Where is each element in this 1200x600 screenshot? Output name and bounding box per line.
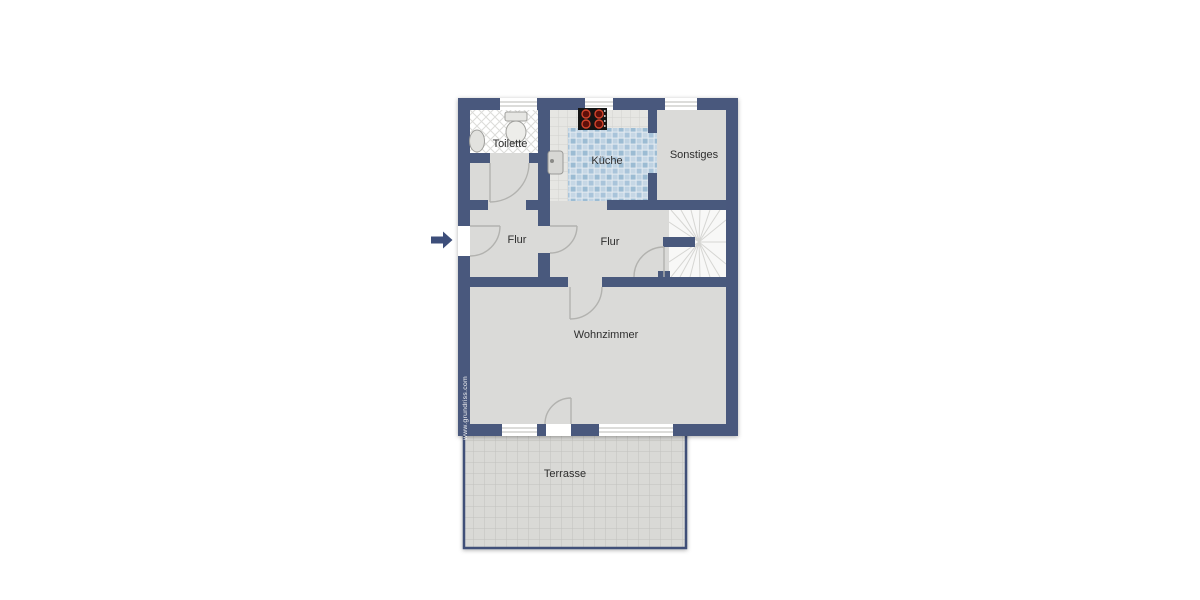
room-label-kueche: Küche — [591, 155, 622, 167]
window-symbol-icon — [665, 98, 697, 110]
room-label-sonstiges: Sonstiges — [670, 149, 719, 161]
floor-plan: Toilette Küche Sonstiges Flur Flur Wohnz… — [0, 0, 1200, 600]
watermark-text: www.grundriss.com — [462, 376, 469, 441]
kitchen-sink-icon — [548, 151, 563, 174]
room-label-terrasse: Terrasse — [544, 468, 586, 480]
entrance-opening — [458, 226, 470, 256]
window-symbol-icon — [502, 424, 537, 436]
stair-rail-wall — [663, 237, 695, 247]
stove-icon — [578, 108, 607, 130]
entrance-arrow-icon — [431, 232, 453, 249]
room-label-flur-mitte: Flur — [601, 236, 620, 248]
terrace-area — [464, 430, 686, 548]
room-label-flur-links: Flur — [508, 234, 527, 246]
window-symbol-icon — [599, 424, 673, 436]
terrace-door-opening — [546, 424, 571, 436]
terrace-floor — [464, 430, 686, 548]
kueche-sonstiges-opening — [648, 133, 657, 173]
room-label-toilette: Toilette — [493, 138, 528, 150]
room-label-wohnzimmer: Wohnzimmer — [574, 329, 639, 341]
floor-plan-page: Toilette Küche Sonstiges Flur Flur Wohnz… — [0, 0, 1200, 600]
window-symbol-icon — [500, 98, 537, 110]
washbasin-icon — [470, 130, 485, 152]
